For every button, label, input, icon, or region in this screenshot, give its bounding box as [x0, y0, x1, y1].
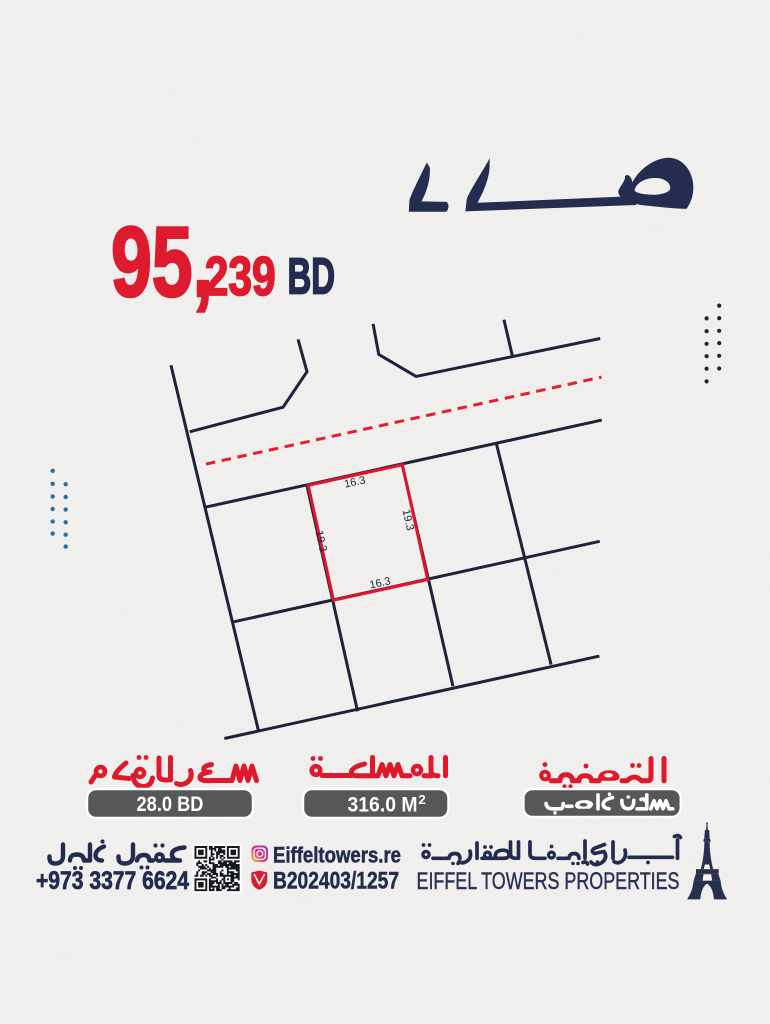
svg-text:+973 3377 6624: +973 3377 6624 — [36, 867, 189, 895]
svg-text:95,: 95, — [111, 206, 213, 317]
svg-text:Eiffeltowers.re: Eiffeltowers.re — [273, 843, 401, 868]
svg-text:316.0 M: 316.0 M — [348, 793, 418, 817]
svg-text:2: 2 — [419, 792, 426, 807]
svg-text:239: 239 — [205, 245, 276, 307]
svg-text:BD: BD — [288, 248, 336, 305]
svg-text:28.0 BD: 28.0 BD — [137, 792, 204, 816]
svg-text:EIFFEL TOWERS PROPERTIES: EIFFEL TOWERS PROPERTIES — [417, 868, 680, 895]
svg-text:B202403/1257: B202403/1257 — [273, 868, 399, 895]
